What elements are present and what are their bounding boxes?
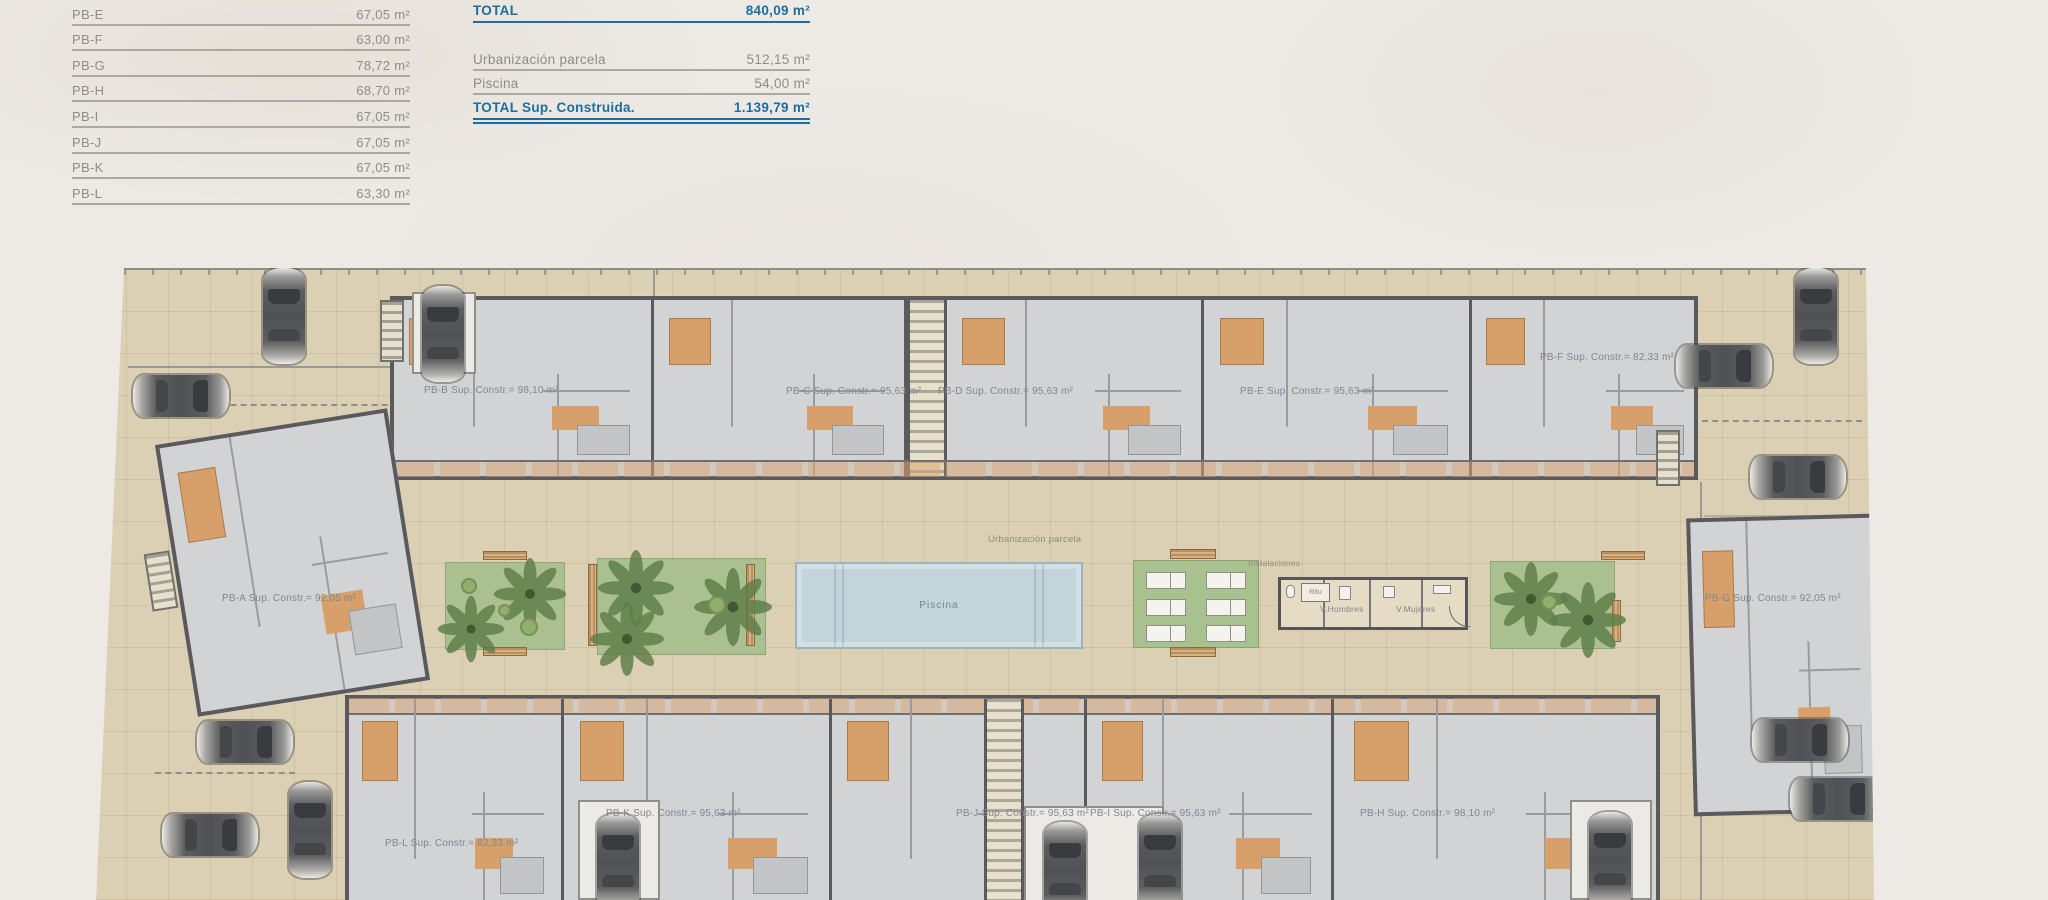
- toilet-icon: [1286, 585, 1295, 598]
- summary-value: 54,00 m²: [754, 76, 810, 91]
- area-row: PB-G78,72 m²: [72, 51, 410, 77]
- ritu-label: Ritu: [1309, 589, 1321, 596]
- area-row: PB-K67,05 m²: [72, 154, 410, 180]
- palm-tree-icon: [436, 594, 506, 664]
- installations-building: Ritu: [1278, 577, 1468, 630]
- grand-total-value: 1.139,79 m²: [734, 100, 810, 115]
- unit-label-pb-g: PB-G Sup. Constr.= 92,05 m²: [1705, 593, 1841, 604]
- urbanization-label: Urbanización parcela: [988, 534, 1081, 545]
- ritu-room: Ritu: [1301, 583, 1330, 602]
- stairs: [1656, 430, 1680, 486]
- summary-row: Urbanización parcela512,15 m²: [473, 47, 810, 71]
- unit-label-pb-a: PB-A Sup. Constr.= 92,05 m²: [222, 593, 356, 604]
- summary-table: TOTAL840,09 m² Urbanización parcela512,1…: [473, 0, 810, 124]
- sink-icon: [1383, 586, 1395, 598]
- total-label: TOTAL: [473, 3, 518, 18]
- area-row: PB-F63,00 m²: [72, 26, 410, 52]
- car-icon: [1676, 345, 1772, 387]
- unit-label-pb-d: PB-D Sup. Constr.= 95,63 m²: [938, 386, 1073, 397]
- unit-label-pb-i: PB-I Sup. Constr.= 95,63 m²: [1090, 808, 1221, 819]
- parking-line: [1702, 420, 1862, 422]
- car-icon: [1750, 456, 1846, 498]
- car-icon: [1044, 822, 1086, 900]
- sink-icon: [1433, 585, 1451, 594]
- parking-line: [155, 772, 295, 774]
- car-icon: [1589, 812, 1631, 900]
- unit-id: PB-F: [72, 32, 103, 47]
- unit-area: 63,00 m²: [356, 32, 410, 47]
- summary-label: Urbanización parcela: [473, 52, 606, 67]
- unit-pb-l: [349, 699, 564, 900]
- car-icon: [1752, 719, 1848, 761]
- table-icon: [1146, 572, 1186, 589]
- unit-id: PB-J: [72, 135, 101, 150]
- car-icon: [1139, 814, 1181, 900]
- summary-row: Piscina54,00 m²: [473, 71, 810, 95]
- unit-area: 67,05 m²: [356, 7, 410, 22]
- bush-icon: [498, 604, 511, 617]
- unit-id: PB-E: [72, 7, 104, 22]
- bench-icon: [1170, 647, 1216, 657]
- car-icon: [1795, 268, 1837, 364]
- site-plan-sheet: PB-E67,05 m² PB-F63,00 m² PB-G78,72 m² P…: [0, 0, 2048, 900]
- installations-label: Instalaciones: [1248, 558, 1300, 568]
- bush-icon: [1541, 594, 1557, 610]
- pergola-seating: [1133, 560, 1259, 648]
- unit-area: 67,05 m²: [356, 160, 410, 175]
- car-icon: [1790, 778, 1886, 820]
- unit-label-pb-b: PB-B Sup. Constr.= 98,10 m²: [424, 385, 559, 396]
- car-icon: [597, 814, 639, 900]
- unit-label-pb-l: PB-L Sup. Constr.= 82,33 m²: [385, 838, 518, 849]
- womens-changing-room-label: V.Mujeres: [1396, 604, 1435, 614]
- table-icon: [1206, 625, 1246, 642]
- double-rule: [473, 122, 810, 124]
- bush-icon: [708, 596, 726, 614]
- stairs: [380, 300, 404, 362]
- boundary-fence: [124, 270, 1866, 275]
- unit-area: 67,05 m²: [356, 109, 410, 124]
- south-building: [345, 695, 1660, 900]
- grand-total-row: TOTAL Sup. Construida.1.139,79 m²: [473, 95, 810, 120]
- unit-pb-a: [155, 408, 430, 716]
- bench-icon: [1601, 551, 1645, 560]
- table-icon: [1206, 572, 1246, 589]
- table-icon: [1146, 625, 1186, 642]
- unit-area-table: PB-E67,05 m² PB-F63,00 m² PB-G78,72 m² P…: [72, 0, 410, 205]
- pool-label: Piscina: [919, 600, 958, 611]
- summary-value: 512,15 m²: [747, 52, 810, 67]
- parking-divider: [128, 366, 390, 368]
- palm-tree-icon: [588, 600, 666, 678]
- unit-label-pb-f: PB-F Sup. Constr.= 82,33 m²: [1540, 352, 1674, 363]
- car-icon: [422, 286, 464, 382]
- area-row: PB-L63,30 m²: [72, 179, 410, 205]
- mens-changing-room-label: V.Hombres: [1320, 604, 1364, 614]
- unit-label-pb-k: PB-K Sup. Constr.= 95,63 m²: [606, 808, 741, 819]
- unit-id: PB-H: [72, 83, 104, 98]
- unit-label-pb-c: PB-C Sup. Constr.= 95,63 m²: [786, 386, 921, 397]
- table-icon: [1206, 599, 1246, 616]
- unit-id: PB-G: [72, 58, 105, 73]
- palm-tree-icon: [692, 566, 774, 648]
- unit-area: 78,72 m²: [356, 58, 410, 73]
- unit-id: PB-K: [72, 160, 104, 175]
- parking-divider: [653, 268, 655, 298]
- car-icon: [162, 814, 258, 856]
- bush-icon: [461, 578, 477, 594]
- bench-icon: [1170, 549, 1216, 559]
- unit-area: 68,70 m²: [356, 83, 410, 98]
- car-icon: [289, 782, 331, 878]
- total-value: 840,09 m²: [746, 3, 810, 18]
- area-row: PB-H68,70 m²: [72, 77, 410, 103]
- unit-label-pb-e: PB-E Sup. Constr.= 95,63 m²: [1240, 386, 1375, 397]
- car-icon: [263, 268, 305, 364]
- unit-area: 63,30 m²: [356, 186, 410, 201]
- car-icon: [133, 375, 229, 417]
- total-row: TOTAL840,09 m²: [473, 0, 810, 23]
- palm-tree-icon: [1548, 580, 1628, 660]
- table-icon: [1146, 599, 1186, 616]
- swimming-pool: Piscina: [795, 562, 1083, 649]
- unit-id: PB-L: [72, 186, 102, 201]
- grand-total-label: TOTAL Sup. Construida.: [473, 100, 635, 115]
- area-row: PB-J67,05 m²: [72, 128, 410, 154]
- bush-icon: [520, 618, 538, 636]
- toilet-icon: [1339, 586, 1351, 600]
- unit-pb-g: [1686, 514, 1882, 817]
- unit-area: 67,05 m²: [356, 135, 410, 150]
- door-arc-icon: [1449, 606, 1470, 627]
- table-spacer: [473, 23, 810, 47]
- stairwell: [984, 699, 1024, 900]
- unit-label-pb-h: PB-H Sup. Constr.= 98,10 m²: [1360, 808, 1495, 819]
- unit-id: PB-I: [72, 109, 98, 124]
- area-row: PB-E67,05 m²: [72, 0, 410, 26]
- unit-label-pb-j: PB-J Sup. Constr.= 95,63 m²: [956, 808, 1089, 819]
- car-icon: [197, 721, 293, 763]
- summary-label: Piscina: [473, 76, 519, 91]
- area-row: PB-I67,05 m²: [72, 102, 410, 128]
